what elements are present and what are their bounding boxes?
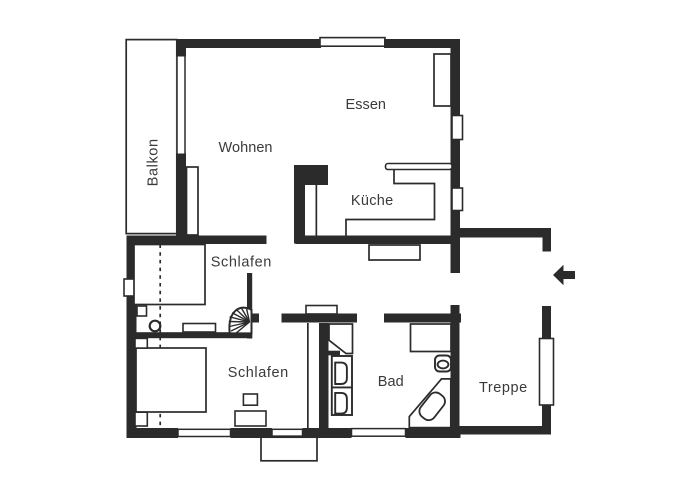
svg-text:Treppe: Treppe bbox=[479, 380, 528, 396]
svg-text:Wohnen: Wohnen bbox=[219, 140, 273, 156]
svg-text:Bad: Bad bbox=[378, 374, 404, 390]
svg-text:Essen: Essen bbox=[346, 97, 387, 113]
svg-text:Balkon: Balkon bbox=[146, 138, 162, 186]
svg-text:Küche: Küche bbox=[351, 193, 394, 209]
svg-text:Schlafen: Schlafen bbox=[211, 254, 272, 270]
svg-text:Schlafen: Schlafen bbox=[228, 365, 289, 381]
